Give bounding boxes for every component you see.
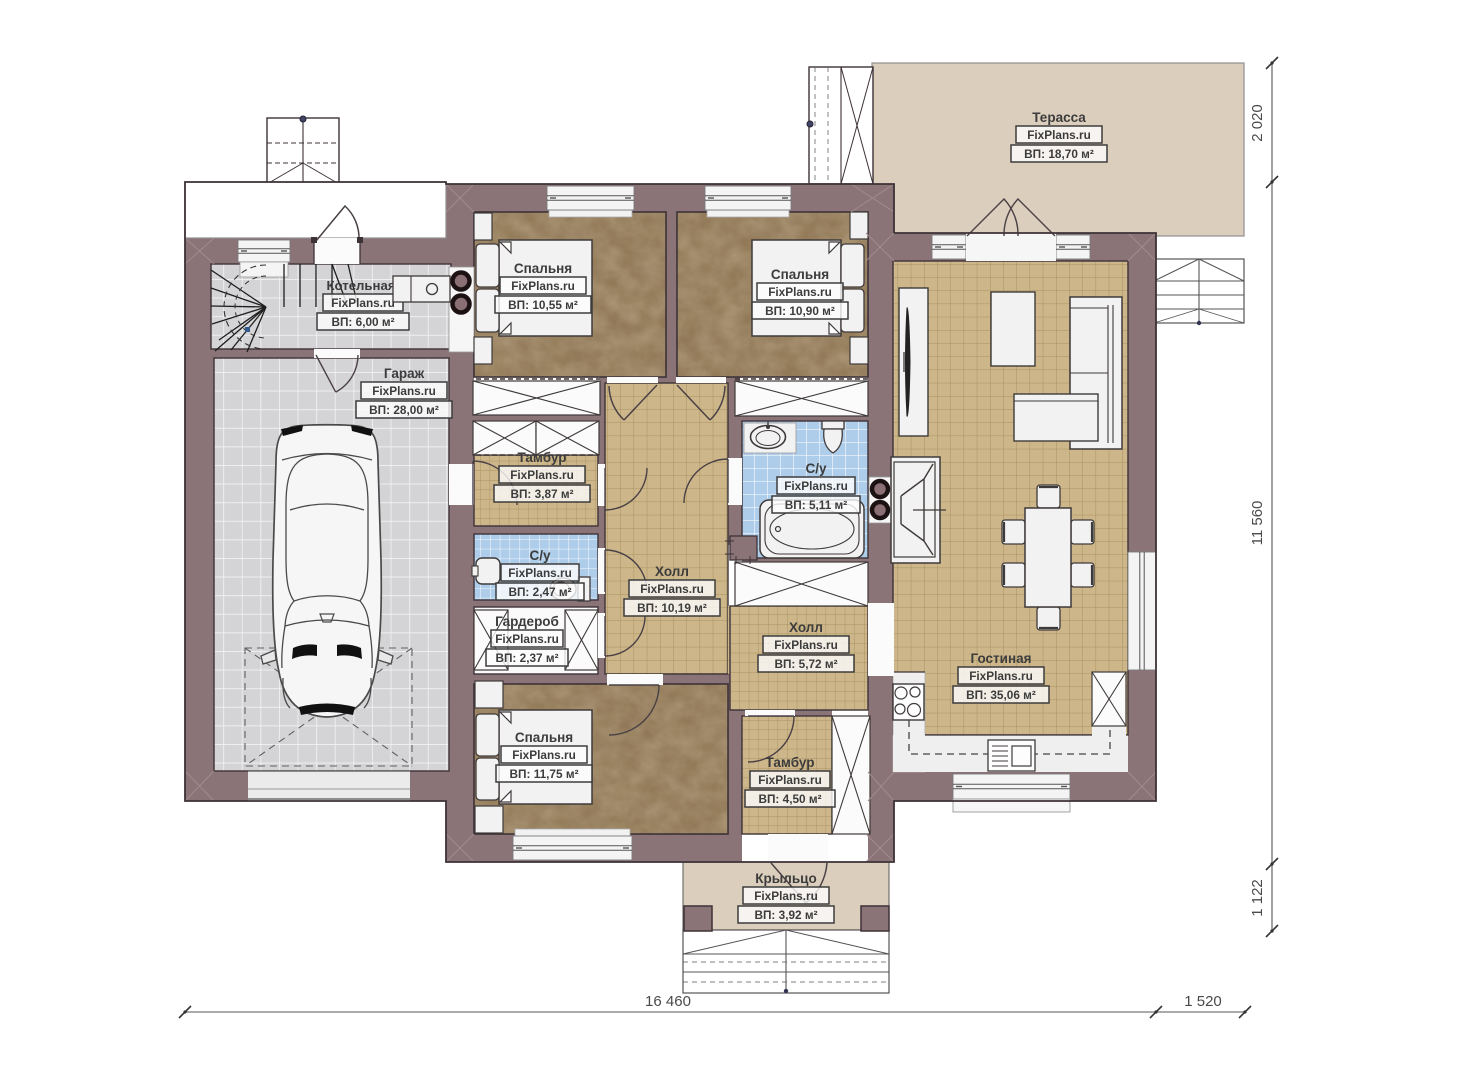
svg-text:FixPlans.ru: FixPlans.ru: [510, 468, 574, 482]
svg-text:Спальня: Спальня: [514, 261, 572, 276]
svg-text:ВП: 5,72 м²: ВП: 5,72 м²: [774, 657, 837, 671]
svg-text:ВП: 18,70 м²: ВП: 18,70 м²: [1024, 147, 1094, 161]
svg-text:16 460: 16 460: [645, 993, 691, 1010]
svg-text:FixPlans.ru: FixPlans.ru: [511, 279, 575, 293]
svg-text:FixPlans.ru: FixPlans.ru: [969, 669, 1033, 683]
svg-text:Тамбур: Тамбур: [518, 450, 567, 465]
svg-text:ВП: 28,00 м²: ВП: 28,00 м²: [369, 403, 439, 417]
svg-text:Холл: Холл: [789, 620, 823, 635]
svg-text:ВП: 2,47 м²: ВП: 2,47 м²: [508, 585, 571, 599]
svg-text:FixPlans.ru: FixPlans.ru: [774, 638, 838, 652]
svg-text:FixPlans.ru: FixPlans.ru: [754, 889, 818, 903]
svg-text:Спальня: Спальня: [771, 267, 829, 282]
svg-text:FixPlans.ru: FixPlans.ru: [372, 384, 436, 398]
svg-text:ВП: 5,11 м²: ВП: 5,11 м²: [785, 498, 848, 512]
svg-text:FixPlans.ru: FixPlans.ru: [768, 285, 832, 299]
svg-text:1 122: 1 122: [1249, 879, 1266, 917]
svg-text:Спальня: Спальня: [515, 730, 573, 745]
svg-text:ВП: 3,87 м²: ВП: 3,87 м²: [510, 487, 573, 501]
svg-text:Котельная: Котельная: [326, 278, 395, 293]
svg-text:ВП: 6,00 м²: ВП: 6,00 м²: [331, 315, 394, 329]
svg-text:С/у: С/у: [529, 548, 551, 563]
svg-text:FixPlans.ru: FixPlans.ru: [758, 773, 822, 787]
svg-text:ВП: 11,75 м²: ВП: 11,75 м²: [509, 767, 578, 781]
svg-text:Крыльцо: Крыльцо: [755, 871, 816, 886]
svg-text:Гараж: Гараж: [384, 366, 425, 381]
svg-text:ВП: 10,55 м²: ВП: 10,55 м²: [508, 298, 578, 312]
svg-text:1 520: 1 520: [1184, 993, 1222, 1010]
svg-text:FixPlans.ru: FixPlans.ru: [640, 582, 704, 596]
svg-text:Терасса: Терасса: [1032, 110, 1086, 125]
svg-text:ВП: 35,06 м²: ВП: 35,06 м²: [966, 688, 1036, 702]
svg-text:Гардероб: Гардероб: [495, 614, 559, 629]
svg-text:FixPlans.ru: FixPlans.ru: [1027, 128, 1091, 142]
svg-text:ВП: 10,19 м²: ВП: 10,19 м²: [637, 601, 707, 615]
svg-text:ВП: 3,92 м²: ВП: 3,92 м²: [754, 908, 817, 922]
svg-text:FixPlans.ru: FixPlans.ru: [512, 748, 576, 762]
svg-text:FixPlans.ru: FixPlans.ru: [784, 479, 848, 493]
svg-text:2 020: 2 020: [1249, 104, 1266, 142]
svg-text:ВП: 4,50 м²: ВП: 4,50 м²: [758, 792, 821, 806]
svg-text:Холл: Холл: [655, 564, 689, 579]
svg-text:FixPlans.ru: FixPlans.ru: [331, 296, 395, 310]
svg-text:FixPlans.ru: FixPlans.ru: [495, 632, 559, 646]
svg-text:11 560: 11 560: [1249, 501, 1266, 546]
svg-text:С/у: С/у: [805, 461, 827, 476]
svg-text:Гостиная: Гостиная: [970, 651, 1031, 666]
svg-text:Тамбур: Тамбур: [766, 755, 815, 770]
svg-text:FixPlans.ru: FixPlans.ru: [508, 566, 572, 580]
svg-text:ВП: 2,37 м²: ВП: 2,37 м²: [495, 651, 558, 665]
svg-text:ВП: 10,90 м²: ВП: 10,90 м²: [765, 304, 835, 318]
